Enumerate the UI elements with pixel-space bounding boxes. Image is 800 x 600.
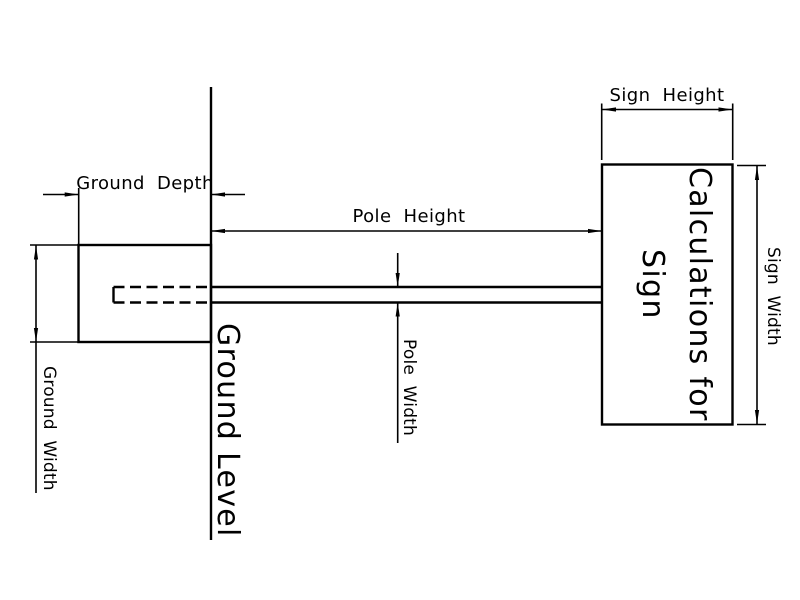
sign-text-line2: Sign: [635, 249, 670, 320]
ground-width-label: Ground Width: [39, 366, 59, 491]
pole-width-label: Pole Width: [399, 339, 419, 436]
sign-width-label: Sign Width: [763, 247, 783, 346]
drawing-canvas: Sign Height Sign Width Pole Height Groun…: [0, 0, 800, 600]
sign-height-label: Sign Height: [610, 85, 725, 106]
sign-width-arrow-bottom-icon: [755, 410, 759, 424]
sign-width-arrow-top-icon: [755, 166, 759, 180]
ground-depth-label: Ground Depth: [76, 173, 214, 194]
pole-width-arrow-top-icon: [396, 273, 400, 287]
pole-height-arrow-right-icon: [588, 229, 602, 233]
ground-width-arrow-bottom-icon: [34, 328, 38, 342]
sign-height-arrow-right-icon: [719, 107, 733, 111]
ground-level-label: Ground Level: [210, 323, 245, 538]
pole-height-label: Pole Height: [353, 206, 466, 227]
sign-height-arrow-left-icon: [602, 107, 616, 111]
sign-text-line1: Calculations for: [682, 167, 717, 422]
ground-width-arrow-top-icon: [34, 246, 38, 260]
pole-width-arrow-bottom-icon: [396, 303, 400, 317]
ground-block-outline: [79, 245, 212, 342]
pole-height-arrow-left-icon: [211, 229, 225, 233]
